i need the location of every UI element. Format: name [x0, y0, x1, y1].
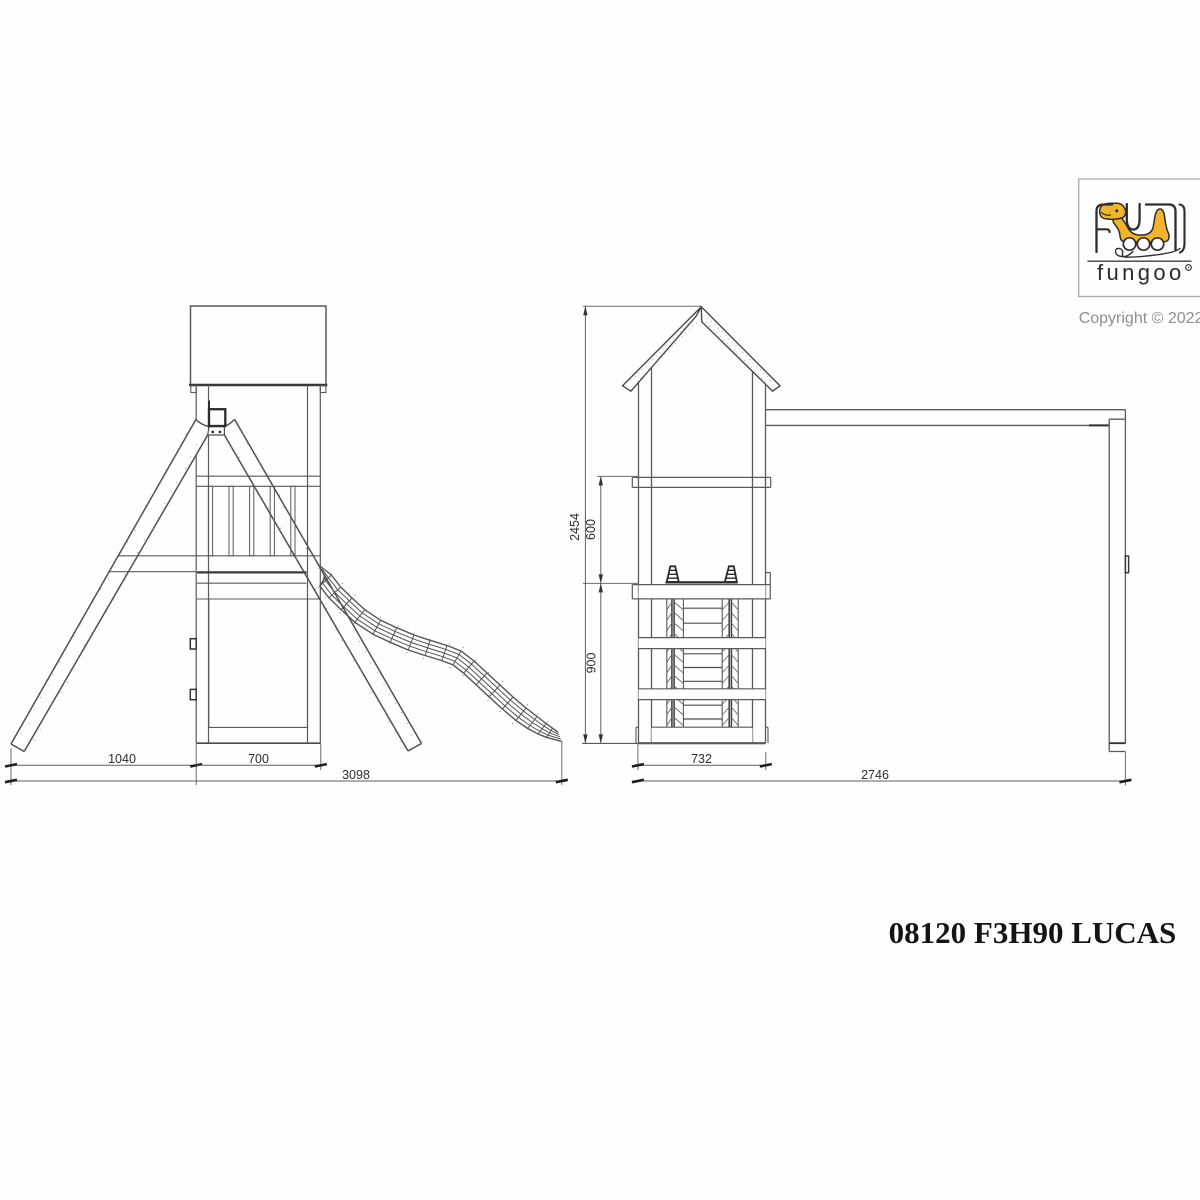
svg-text:900: 900: [584, 653, 598, 674]
svg-text:700: 700: [248, 752, 269, 766]
svg-text:2454: 2454: [568, 513, 582, 541]
svg-text:08120 F3H90 LUCAS: 08120 F3H90 LUCAS: [889, 915, 1177, 950]
svg-text:732: 732: [691, 752, 712, 766]
svg-text:600: 600: [584, 519, 598, 540]
svg-text:fungoo: fungoo: [1097, 260, 1185, 285]
svg-text:3098: 3098: [342, 768, 370, 782]
svg-text:Copyright © 2022: Copyright © 2022: [1079, 310, 1200, 327]
svg-text:1040: 1040: [108, 752, 136, 766]
svg-text:2746: 2746: [861, 768, 889, 782]
